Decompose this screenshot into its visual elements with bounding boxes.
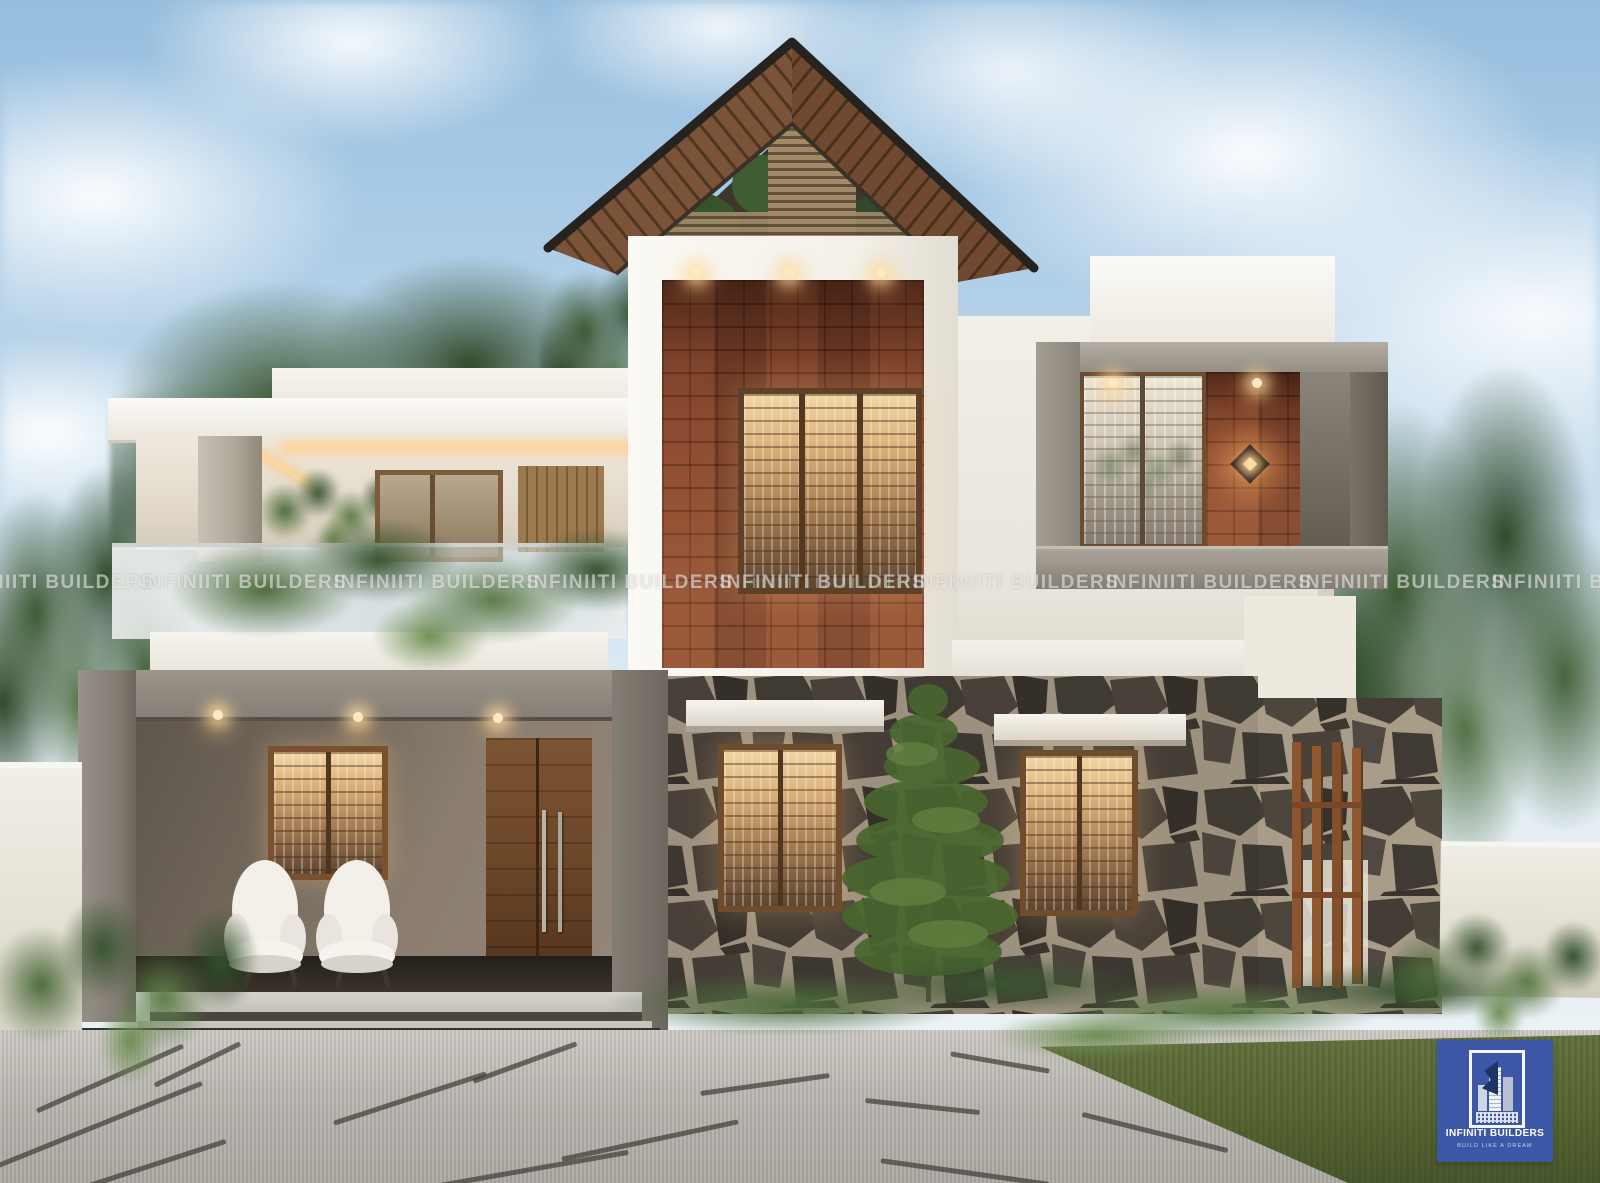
builder-logo: INFINITI BUILDERS BUILD LIKE A DREAM xyxy=(1437,1040,1553,1162)
stone-window-right-mullion xyxy=(1077,756,1082,910)
box-ceiling-light-2 xyxy=(1252,378,1262,388)
architectural-render: INFINIITI BUILDERS INFINIITI BUILDERS IN… xyxy=(0,0,1600,1183)
paving-joint xyxy=(865,1098,980,1115)
paving-joint xyxy=(561,1119,738,1161)
box-window-canopy xyxy=(1036,342,1388,375)
tower-window-mullion-2 xyxy=(857,394,863,588)
watermark: INFINIITI BUILDERS xyxy=(720,572,926,594)
watermark: INFINIITI BUILDERS xyxy=(334,572,540,594)
box-window-glass xyxy=(1080,372,1206,548)
right-corner-plants xyxy=(1380,880,1600,1050)
tower-downlight-3 xyxy=(876,268,886,278)
paving-joint xyxy=(63,1139,226,1183)
armchair-2 xyxy=(316,860,398,988)
balcony-roof-fascia xyxy=(108,398,672,443)
wall-behind-pillar xyxy=(1244,596,1356,706)
watermark: INFINIITI BUILDERS xyxy=(1106,572,1312,594)
watermark: INFINIITI BUILDERS xyxy=(1492,572,1600,594)
watermark: INFINIITI BUILDERS xyxy=(141,572,347,594)
glass-mullion xyxy=(1140,376,1145,544)
box-ceiling-light-1 xyxy=(1108,378,1118,388)
paving-joint xyxy=(880,1158,1049,1183)
door-seam xyxy=(536,738,539,968)
entry-door xyxy=(486,738,592,968)
tower-window-mullion-1 xyxy=(799,394,805,588)
tower-downlight-1 xyxy=(692,268,702,278)
paving-joint xyxy=(333,1071,487,1125)
logo-emblem xyxy=(1469,1050,1525,1128)
paving-joint xyxy=(421,1150,629,1183)
watermark: INFINIITI BUILDERS xyxy=(913,572,1119,594)
left-ferns xyxy=(0,850,265,1095)
lamp-glow xyxy=(1243,457,1257,471)
watermark: INFINIITI BUILDERS xyxy=(527,572,733,594)
tower-downlight-2 xyxy=(784,268,794,278)
watermark: INFINIITI BUILDERS xyxy=(1299,572,1505,594)
watermark: INFINIITI BUILDERS xyxy=(0,572,154,594)
porch-light-3 xyxy=(493,713,503,723)
box-window-inner-wall xyxy=(1300,372,1350,548)
stone-window-left-mullion xyxy=(778,750,783,906)
box-window-frame-right xyxy=(1350,372,1388,548)
paving-joint xyxy=(472,1041,577,1083)
trellis-rail-2 xyxy=(1292,892,1362,898)
logo-building-3 xyxy=(1503,1077,1513,1111)
porch-light-2 xyxy=(353,712,363,722)
porch-light-1 xyxy=(213,710,223,720)
porch-frame-top xyxy=(78,670,668,721)
door-handle-2 xyxy=(558,812,562,932)
parapet xyxy=(1090,256,1335,353)
trellis-rail-1 xyxy=(1292,802,1362,808)
tower-window-slats xyxy=(744,394,916,588)
logo-base xyxy=(1476,1112,1518,1123)
door-handle-1 xyxy=(542,810,546,932)
tower-window xyxy=(738,388,922,594)
logo-tagline: BUILD LIKE A DREAM xyxy=(1437,1143,1553,1149)
logo-title: INFINITI BUILDERS xyxy=(1437,1128,1553,1139)
paving-joint xyxy=(700,1073,829,1096)
